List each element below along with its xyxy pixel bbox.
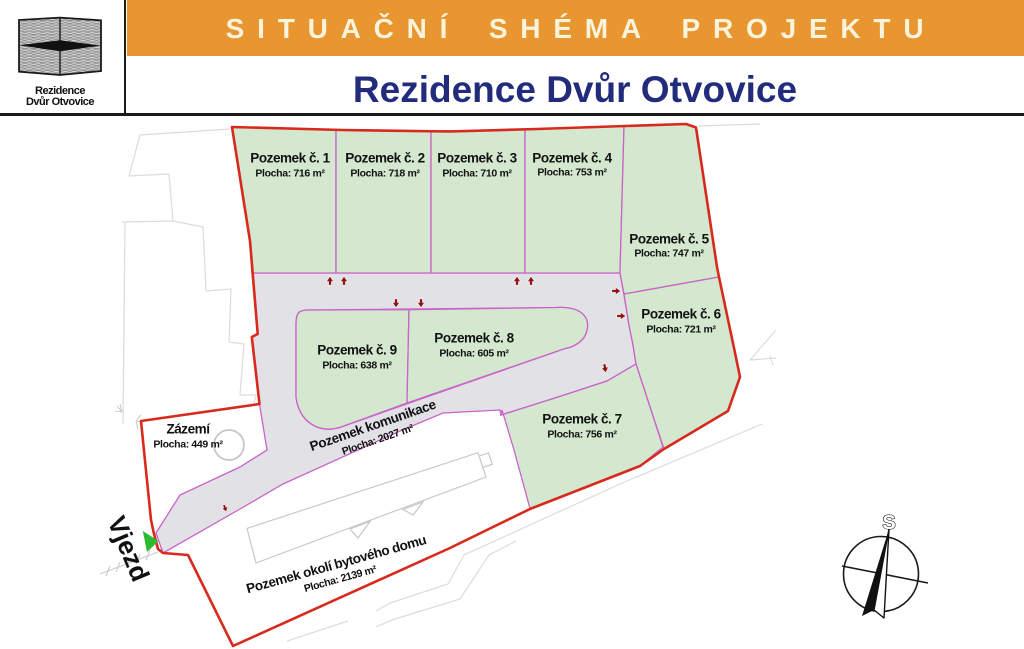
- svg-text:S: S: [882, 512, 895, 534]
